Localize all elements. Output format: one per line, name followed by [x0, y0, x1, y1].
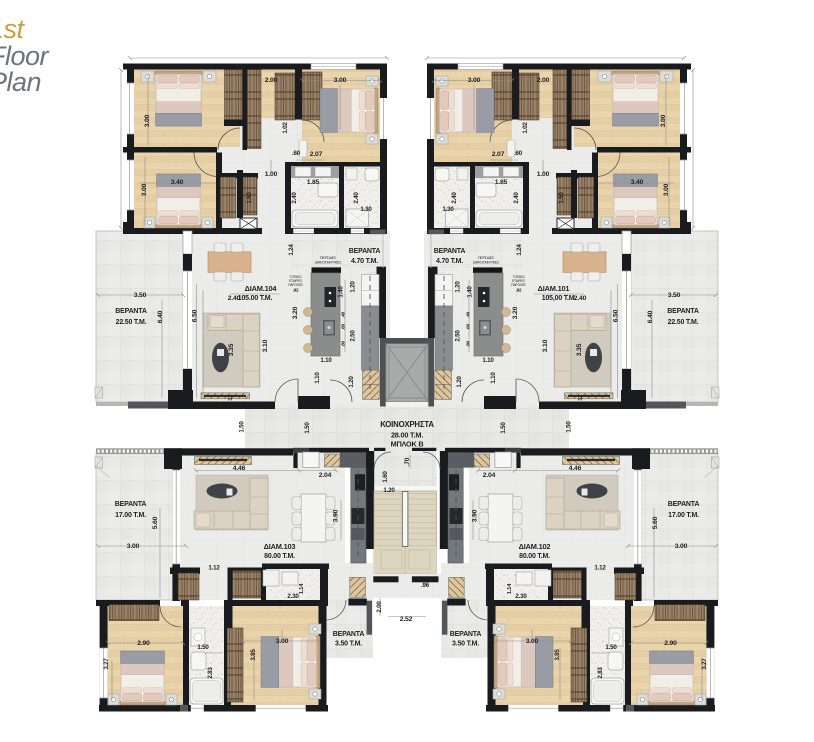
svg-text:1.50: 1.50	[566, 421, 573, 433]
svg-text:3.85: 3.85	[554, 649, 561, 661]
svg-text:1.20: 1.20	[455, 281, 462, 293]
svg-text:2.90: 2.90	[137, 640, 150, 647]
svg-text:3.90: 3.90	[472, 509, 479, 522]
svg-text:ΒΕΡΑΝΤΑ: ΒΕΡΑΝΤΑ	[349, 248, 381, 255]
svg-text:.80: .80	[341, 340, 347, 347]
svg-text:5.60: 5.60	[152, 516, 159, 529]
svg-text:3.10: 3.10	[542, 339, 549, 352]
svg-text:6.40: 6.40	[647, 310, 654, 323]
svg-text:ΠΑΡΟΧΕΣ: ΠΑΡΟΧΕΣ	[511, 283, 526, 287]
svg-text:2.07: 2.07	[492, 151, 505, 158]
svg-text:.80: .80	[466, 340, 472, 347]
svg-text:3.00: 3.00	[675, 543, 688, 550]
svg-text:3.85: 3.85	[250, 649, 257, 661]
svg-text:3.00: 3.00	[468, 77, 481, 84]
svg-text:1.50: 1.50	[246, 192, 253, 204]
svg-text:1.30: 1.30	[360, 206, 372, 213]
svg-text:2.40: 2.40	[574, 295, 587, 302]
svg-text:1.85: 1.85	[307, 179, 320, 186]
svg-text:31: 31	[578, 395, 584, 401]
svg-text:1.50: 1.50	[197, 644, 209, 651]
svg-text:3.00: 3.00	[660, 114, 667, 127]
svg-text:5.60: 5.60	[652, 516, 659, 529]
svg-text:2.40: 2.40	[291, 192, 298, 204]
svg-text:6.40: 6.40	[157, 310, 164, 323]
svg-text:1.24: 1.24	[516, 244, 523, 256]
svg-text:2.40: 2.40	[228, 295, 241, 302]
svg-text:4.70 Τ.Μ.: 4.70 Τ.Μ.	[436, 258, 463, 265]
svg-text:1.02: 1.02	[282, 122, 289, 134]
svg-text:1.00: 1.00	[265, 171, 278, 178]
svg-text:1.50: 1.50	[239, 421, 246, 433]
svg-text:.70: .70	[404, 457, 411, 466]
svg-text:2.40: 2.40	[451, 192, 458, 204]
svg-text:1.20: 1.20	[350, 281, 357, 293]
svg-text:ΔΙΑΜ.103: ΔΙΑΜ.103	[264, 542, 296, 551]
svg-text:ΔΙΑΜ.102: ΔΙΑΜ.102	[519, 542, 551, 551]
svg-text:1.20: 1.20	[456, 376, 463, 388]
svg-text:3.27: 3.27	[103, 658, 110, 670]
svg-text:ΒΕΡΑΝΤΑ: ΒΕΡΑΝΤΑ	[667, 308, 699, 315]
svg-text:1.10: 1.10	[314, 372, 321, 384]
svg-text:3.00: 3.00	[127, 543, 140, 550]
svg-text:2.50: 2.50	[455, 330, 462, 342]
svg-text:105.00 Τ.Μ.: 105.00 Τ.Μ.	[238, 295, 273, 302]
svg-text:3.20: 3.20	[512, 306, 519, 319]
svg-text:1.00: 1.00	[537, 171, 550, 178]
svg-text:3.50 Τ.Μ.: 3.50 Τ.Μ.	[452, 641, 479, 648]
svg-text:3.00: 3.00	[144, 114, 151, 127]
svg-text:3.00: 3.00	[334, 77, 347, 84]
svg-text:.92: .92	[516, 288, 522, 293]
svg-text:1.40: 1.40	[338, 286, 345, 298]
svg-text:3.00: 3.00	[276, 638, 289, 645]
svg-text:ΒΕΡΑΝΤΑ: ΒΕΡΑΝΤΑ	[668, 501, 700, 508]
svg-text:3.27: 3.27	[701, 658, 708, 670]
svg-text:3.35: 3.35	[576, 343, 583, 356]
svg-text:3.40: 3.40	[631, 179, 644, 186]
svg-text:3.50: 3.50	[134, 292, 147, 299]
svg-text:2.04: 2.04	[319, 472, 332, 479]
svg-text:2.04: 2.04	[483, 472, 496, 479]
svg-text:ΔΙΑΚΟΣΜΗΤΙΚΕΣ: ΔΙΑΚΟΣΜΗΤΙΚΕΣ	[315, 261, 342, 265]
svg-text:3.20: 3.20	[292, 306, 299, 319]
svg-text:2.00: 2.00	[537, 77, 550, 84]
svg-text:22.50 Τ.Μ.: 22.50 Τ.Μ.	[116, 319, 147, 326]
svg-text:4.46: 4.46	[569, 465, 582, 472]
svg-text:1.12: 1.12	[208, 565, 220, 572]
svg-text:1.50: 1.50	[605, 644, 617, 651]
svg-text:80.00 Τ.Μ.: 80.00 Τ.Μ.	[264, 553, 295, 560]
svg-text:1.50: 1.50	[500, 422, 507, 434]
svg-text:2.52: 2.52	[400, 616, 413, 623]
svg-text:4.70 Τ.Μ.: 4.70 Τ.Μ.	[351, 258, 378, 265]
svg-text:1.30: 1.30	[442, 206, 454, 213]
svg-text:.60: .60	[514, 150, 523, 157]
svg-text:1.60: 1.60	[382, 471, 389, 483]
svg-text:3.10: 3.10	[262, 339, 269, 352]
svg-text:2.00: 2.00	[265, 77, 278, 84]
svg-text:2.40: 2.40	[513, 192, 520, 204]
svg-text:3.40: 3.40	[171, 179, 184, 186]
svg-text:1.10: 1.10	[320, 357, 332, 364]
svg-text:3.00: 3.00	[141, 183, 148, 196]
svg-text:2.00: 2.00	[376, 601, 383, 613]
svg-text:80.00 Τ.Μ.: 80.00 Τ.Μ.	[519, 553, 550, 560]
svg-text:ΔΙΑΚΟΣΜΗΤΙΚΕΣ: ΔΙΑΚΟΣΜΗΤΙΚΕΣ	[473, 261, 500, 265]
svg-text:3.50 Τ.Μ.: 3.50 Τ.Μ.	[335, 641, 362, 648]
svg-text:1.02: 1.02	[522, 122, 529, 134]
svg-text:ΔΙΑΜ.101: ΔΙΑΜ.101	[538, 284, 570, 293]
svg-text:1.14: 1.14	[507, 583, 513, 594]
svg-text:.96: .96	[421, 582, 430, 589]
svg-text:3.50: 3.50	[668, 292, 681, 299]
svg-text:2.30: 2.30	[287, 593, 299, 600]
svg-text:ΠΕΡΣΙΔΕΣ: ΠΕΡΣΙΔΕΣ	[320, 256, 337, 260]
svg-text:ΒΕΡΑΝΤΑ: ΒΕΡΑΝΤΑ	[434, 248, 466, 255]
svg-text:.60: .60	[292, 150, 301, 157]
svg-text:31: 31	[228, 395, 234, 401]
svg-text:ΒΕΡΑΝΤΑ: ΒΕΡΑΝΤΑ	[115, 501, 147, 508]
svg-text:1.40: 1.40	[467, 286, 474, 298]
svg-text:3.90: 3.90	[333, 509, 340, 522]
svg-text:ΠΑΡΟΧΕΣ: ΠΑΡΟΧΕΣ	[288, 283, 303, 287]
svg-text:.60: .60	[341, 323, 347, 330]
svg-text:1.85: 1.85	[495, 179, 508, 186]
svg-text:1.24: 1.24	[288, 244, 295, 256]
svg-text:6.50: 6.50	[613, 309, 620, 322]
svg-text:4.46: 4.46	[233, 465, 246, 472]
svg-text:1.10: 1.10	[482, 357, 494, 364]
svg-text:28.00 Τ.Μ.: 28.00 Τ.Μ.	[391, 431, 423, 440]
svg-text:ΒΕΡΑΝΤΑ: ΒΕΡΑΝΤΑ	[115, 308, 147, 315]
svg-text:17.00 Τ.Μ.: 17.00 Τ.Μ.	[668, 512, 699, 519]
svg-text:1.50: 1.50	[558, 192, 565, 204]
svg-text:22.50 Τ.Μ.: 22.50 Τ.Μ.	[668, 319, 699, 326]
svg-text:1.20: 1.20	[383, 487, 395, 494]
svg-text:ΜΠΛΟΚ Β: ΜΠΛΟΚ Β	[391, 440, 424, 449]
svg-text:2.07: 2.07	[310, 151, 323, 158]
svg-text:105,00 Τ.Μ.: 105,00 Τ.Μ.	[542, 295, 577, 302]
svg-text:1.10: 1.10	[490, 372, 497, 384]
svg-text:.92: .92	[293, 288, 299, 293]
svg-text:2.90: 2.90	[664, 640, 677, 647]
svg-text:.60: .60	[466, 323, 472, 330]
svg-text:3.00: 3.00	[526, 638, 539, 645]
svg-text:.40: .40	[341, 311, 347, 318]
svg-text:2.83: 2.83	[207, 667, 214, 679]
svg-text:ΒΕΡΑΝΤΑ: ΒΕΡΑΝΤΑ	[450, 631, 482, 638]
svg-text:1.20: 1.20	[348, 376, 355, 388]
svg-text:6.50: 6.50	[192, 309, 199, 322]
svg-text:2.30: 2.30	[515, 593, 527, 600]
svg-text:1.50: 1.50	[304, 422, 311, 434]
svg-text:ΒΕΡΑΝΤΑ: ΒΕΡΑΝΤΑ	[333, 631, 365, 638]
svg-text:ΚΟΙΝΟΧΡΗΣΤΑ: ΚΟΙΝΟΧΡΗΣΤΑ	[380, 420, 434, 429]
svg-text:2.40: 2.40	[353, 192, 360, 204]
svg-text:1.12: 1.12	[594, 565, 606, 572]
svg-text:ΔΙΑΜ.104: ΔΙΑΜ.104	[245, 284, 278, 293]
svg-text:3.00: 3.00	[663, 183, 670, 196]
svg-text:ΠΕΡΣΙΔΕΣ: ΠΕΡΣΙΔΕΣ	[478, 256, 495, 260]
svg-text:2.50: 2.50	[350, 330, 357, 342]
svg-text:2.83: 2.83	[597, 667, 604, 679]
svg-text:1.14: 1.14	[299, 583, 305, 594]
svg-text:.40: .40	[466, 311, 472, 318]
svg-text:3.35: 3.35	[228, 343, 235, 356]
svg-text:17.00 Τ.Μ.: 17.00 Τ.Μ.	[115, 512, 146, 519]
